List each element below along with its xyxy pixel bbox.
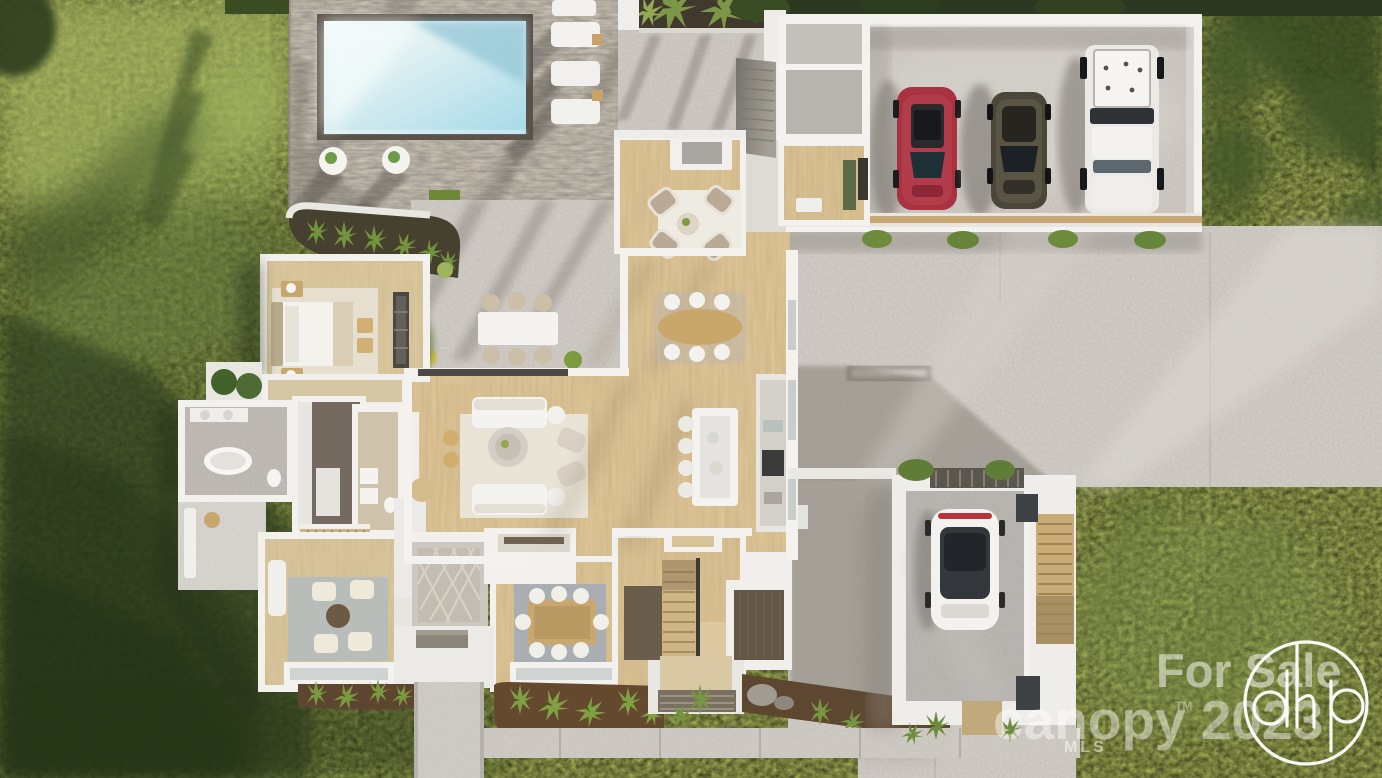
svg-text:canopy 2023: canopy 2023 — [993, 689, 1323, 751]
svg-text:TM: TM — [1175, 699, 1192, 713]
svg-text:MLS: MLS — [1064, 739, 1107, 756]
